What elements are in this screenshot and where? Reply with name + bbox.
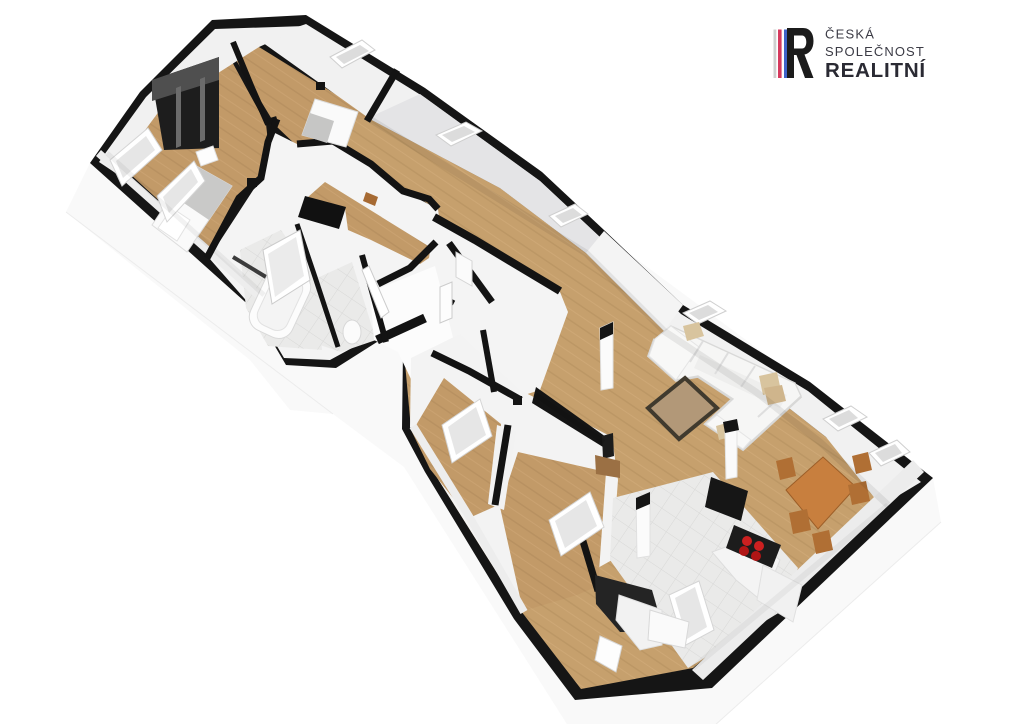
svg-text:SPOLEČNOST: SPOLEČNOST: [825, 44, 925, 59]
svg-text:REALITNÍ: REALITNÍ: [825, 59, 926, 82]
svg-text:ČESKÁ: ČESKÁ: [825, 27, 875, 42]
